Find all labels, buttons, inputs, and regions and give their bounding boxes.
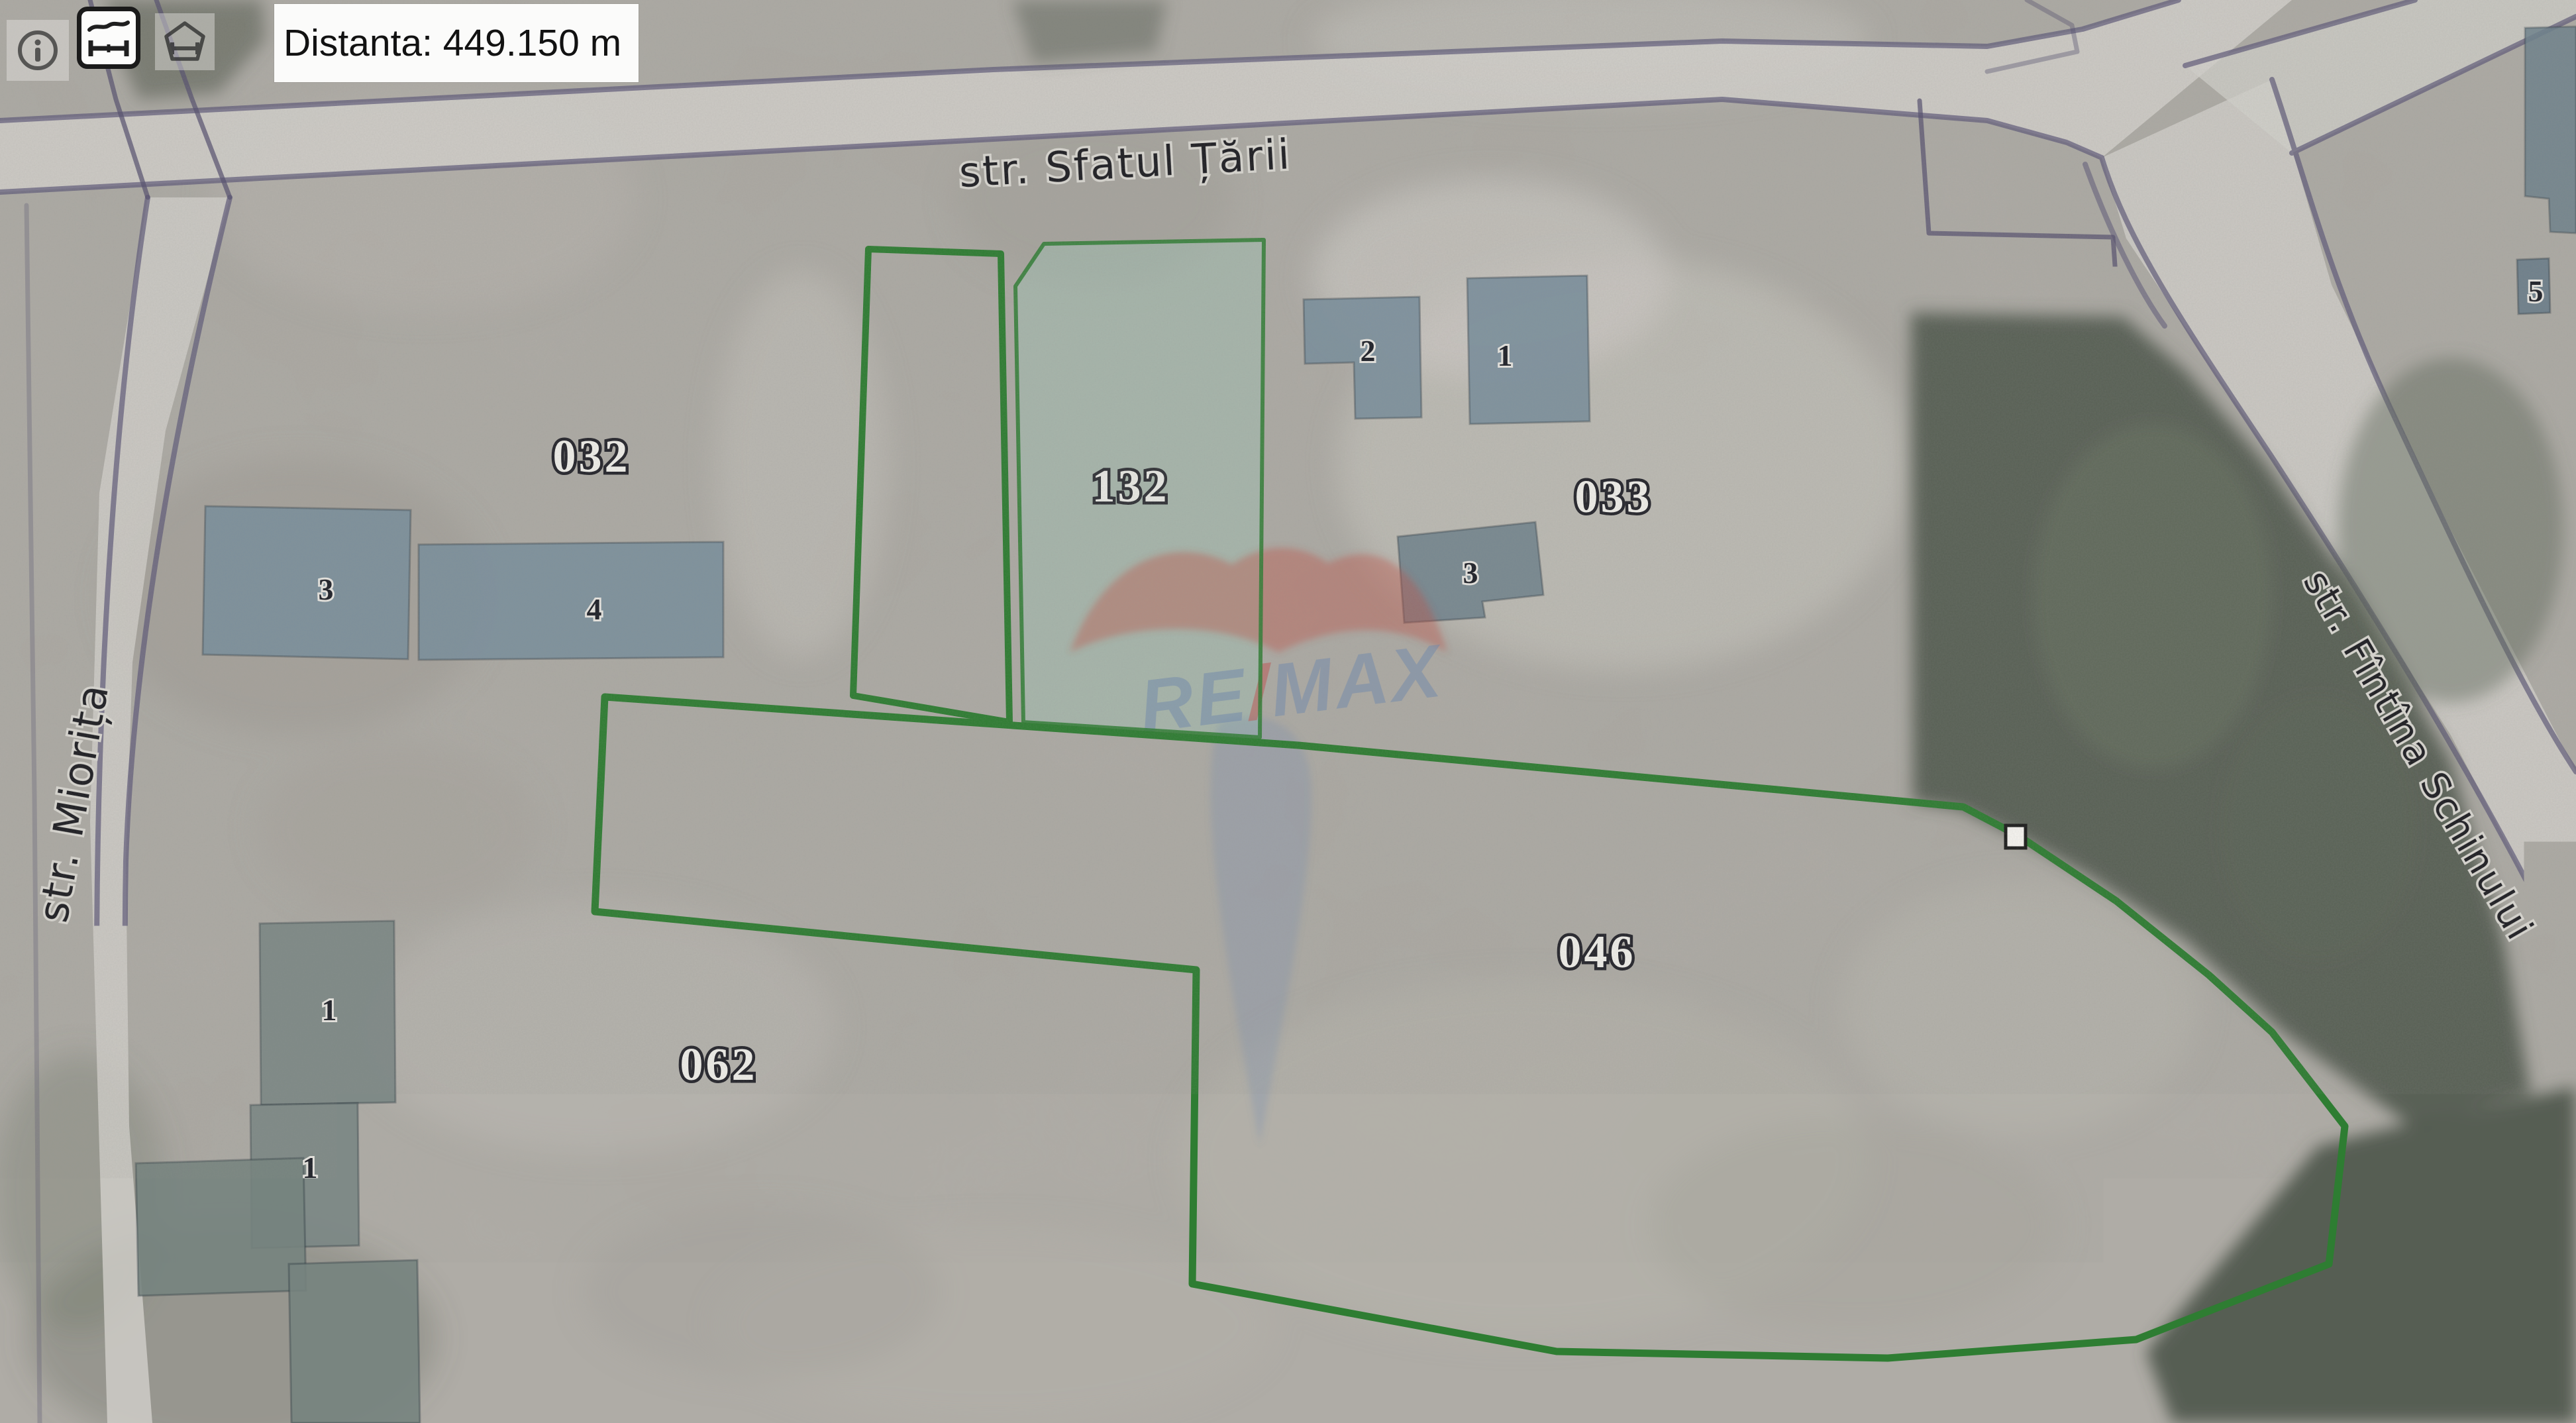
building-label: 4 bbox=[587, 592, 602, 626]
parcel-label-046: 046 bbox=[1559, 927, 1636, 978]
building-label: 3 bbox=[1463, 556, 1478, 590]
building-label: 1 bbox=[348, 1344, 364, 1378]
building bbox=[289, 1260, 420, 1423]
building-label: 5 bbox=[2528, 274, 2544, 308]
measure-vertex-marker[interactable] bbox=[2006, 825, 2026, 848]
building bbox=[419, 542, 723, 660]
building-label: 1 bbox=[322, 993, 337, 1027]
building-label: 1 bbox=[303, 1151, 318, 1185]
distance-measure-icon bbox=[84, 14, 133, 62]
distance-measure-tool-button[interactable] bbox=[77, 7, 140, 69]
parcel-label-132: 132 bbox=[1092, 461, 1170, 512]
info-icon bbox=[14, 26, 62, 74]
building bbox=[203, 506, 411, 659]
area-measure-icon bbox=[162, 19, 208, 64]
vegetation-blob bbox=[2034, 424, 2272, 768]
building-label: 1 bbox=[1498, 339, 1513, 372]
map-viewport[interactable]: RE/MAX str. Sfatul Țării str. Miorița st… bbox=[0, 0, 2576, 1423]
parcel-label-062: 062 bbox=[680, 1039, 758, 1090]
map-toolbar: Distanta: 449.150 m bbox=[0, 0, 795, 113]
distance-readout: Distanta: 449.150 m bbox=[274, 4, 639, 82]
building bbox=[1467, 276, 1590, 424]
info-tool-button[interactable] bbox=[7, 20, 69, 81]
area-measure-tool-button[interactable] bbox=[155, 13, 215, 70]
building-label: 2 bbox=[1361, 334, 1376, 368]
parcel-label-032: 032 bbox=[553, 431, 631, 482]
parcel-label-033: 033 bbox=[1575, 472, 1653, 523]
map-canvas[interactable]: RE/MAX str. Sfatul Țării str. Miorița st… bbox=[0, 0, 2576, 1423]
building-label: 3 bbox=[319, 572, 334, 606]
building-label: 2 bbox=[213, 1213, 229, 1247]
